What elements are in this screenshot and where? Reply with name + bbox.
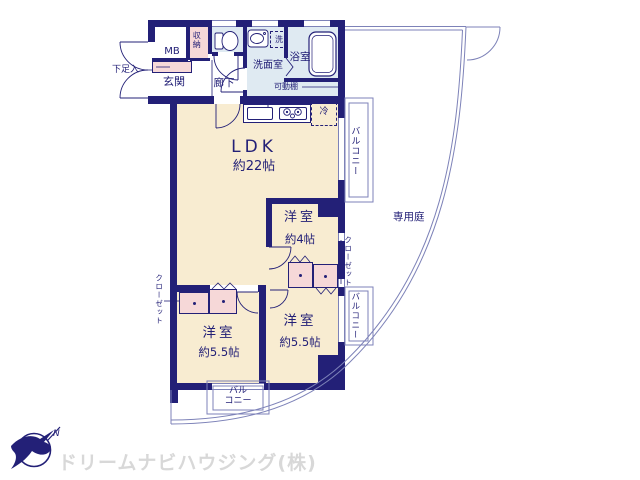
wall — [170, 96, 177, 390]
balcony-bottom-line2: コニー — [214, 396, 262, 406]
room55-right-label: 洋室 — [277, 314, 323, 330]
pillar — [318, 355, 338, 383]
washer-label: 洗 — [270, 35, 288, 44]
wall — [338, 20, 345, 118]
room55-left-size-label: 約5.5帖 — [192, 346, 246, 359]
window — [338, 296, 345, 342]
bath-label: 浴室 — [284, 51, 316, 63]
closet-room55l-cell-a — [179, 292, 209, 314]
garden-label: 専用庭 — [393, 211, 425, 223]
wall — [240, 96, 338, 104]
window — [338, 118, 345, 180]
storage-label: 収納 — [192, 31, 201, 49]
meter-box-label: MB — [158, 46, 186, 58]
closet-room4-cell — [288, 262, 313, 288]
shelf-label: 可動棚 — [274, 82, 298, 91]
wall — [338, 342, 345, 390]
room4-size-label: 約4帖 — [277, 233, 323, 246]
wall — [186, 27, 190, 60]
window — [304, 20, 330, 27]
toilet-floor — [212, 27, 243, 52]
wall — [148, 20, 155, 42]
wall — [212, 52, 218, 56]
entrance-label: 玄関 — [152, 76, 196, 89]
window — [212, 20, 236, 27]
shoe-box-label: 下足入 — [112, 65, 139, 75]
kitchen-sink — [247, 107, 273, 120]
wall — [177, 285, 210, 292]
kitchen-stove — [279, 107, 307, 120]
wall — [243, 90, 247, 96]
wall — [170, 383, 212, 390]
floorplan-canvas: MB 下足入 玄関 収納 廊下 洗面室 洗 浴室 可動棚 冷 LDK 約22帖 … — [0, 0, 640, 480]
wall-stub — [170, 390, 178, 403]
wall — [264, 383, 345, 390]
room55-left-label: 洋室 — [196, 326, 242, 342]
wall — [152, 58, 188, 61]
wall — [190, 58, 210, 61]
shoe-cabinet — [152, 61, 192, 73]
wall — [259, 290, 266, 383]
wall — [234, 52, 243, 56]
wall — [148, 96, 214, 104]
balcony-bottom-label: バル コニー — [214, 386, 262, 407]
closet-room55r-cell — [313, 264, 338, 288]
balcony-bottom-line1: バル — [214, 386, 262, 396]
room55-right-size-label: 約5.5帖 — [273, 336, 327, 349]
balcony-right-top-label: バルコニー — [349, 126, 359, 176]
balcony-right-mid-label: バルコニー — [349, 292, 359, 340]
closet-left-label: クローゼット — [154, 274, 163, 325]
compass-n-label: N — [53, 429, 60, 439]
room4-label: 洋室 — [277, 211, 323, 226]
ldk-size-label: 約22帖 — [214, 160, 294, 175]
wall — [266, 198, 272, 247]
window — [252, 20, 278, 27]
ldk-label: LDK — [214, 138, 294, 158]
company-name: ドリームナビハウジング(株) — [58, 448, 317, 475]
closet-room55l-cell-b — [209, 289, 237, 314]
closet-right-label: クローゼット — [343, 236, 352, 287]
ldk-left-floor — [177, 198, 266, 285]
fridge-label: 冷 — [311, 107, 337, 117]
hall-label: 廊下 — [205, 77, 243, 89]
wall — [208, 27, 212, 54]
